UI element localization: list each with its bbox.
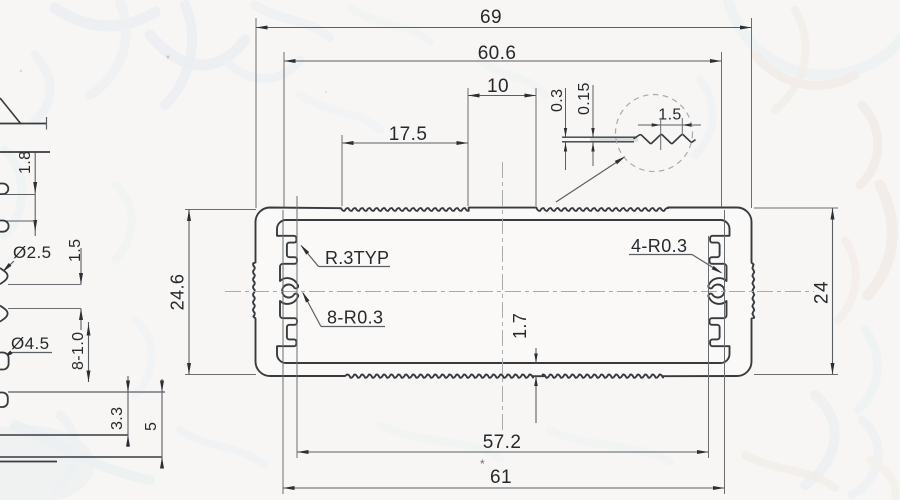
- svg-text:0.15: 0.15: [576, 82, 593, 115]
- svg-text:24: 24: [812, 280, 833, 304]
- svg-text:Ø2.5: Ø2.5: [13, 243, 51, 262]
- svg-text:4-R0.3: 4-R0.3: [631, 236, 687, 256]
- svg-text:R.3TYP: R.3TYP: [325, 248, 389, 268]
- svg-text:24.6: 24.6: [168, 274, 188, 311]
- svg-text:Ø4.5: Ø4.5: [11, 334, 49, 353]
- svg-text:5: 5: [143, 422, 160, 431]
- svg-text:1.5: 1.5: [658, 107, 681, 124]
- svg-text:10: 10: [487, 76, 509, 97]
- svg-text:0.3: 0.3: [549, 89, 566, 112]
- svg-text:3.3: 3.3: [109, 407, 126, 430]
- svg-text:60.6: 60.6: [478, 43, 517, 64]
- svg-text:17.5: 17.5: [389, 124, 428, 145]
- svg-text:1.7: 1.7: [510, 313, 530, 339]
- svg-text:*: *: [480, 457, 485, 471]
- svg-text:8-R0.3: 8-R0.3: [327, 308, 383, 328]
- svg-text:69: 69: [480, 7, 502, 28]
- svg-text:61: 61: [490, 467, 512, 488]
- svg-text:57.2: 57.2: [483, 432, 522, 453]
- svg-text:8-1.0: 8-1.0: [70, 332, 87, 370]
- svg-text:1.8: 1.8: [17, 151, 34, 174]
